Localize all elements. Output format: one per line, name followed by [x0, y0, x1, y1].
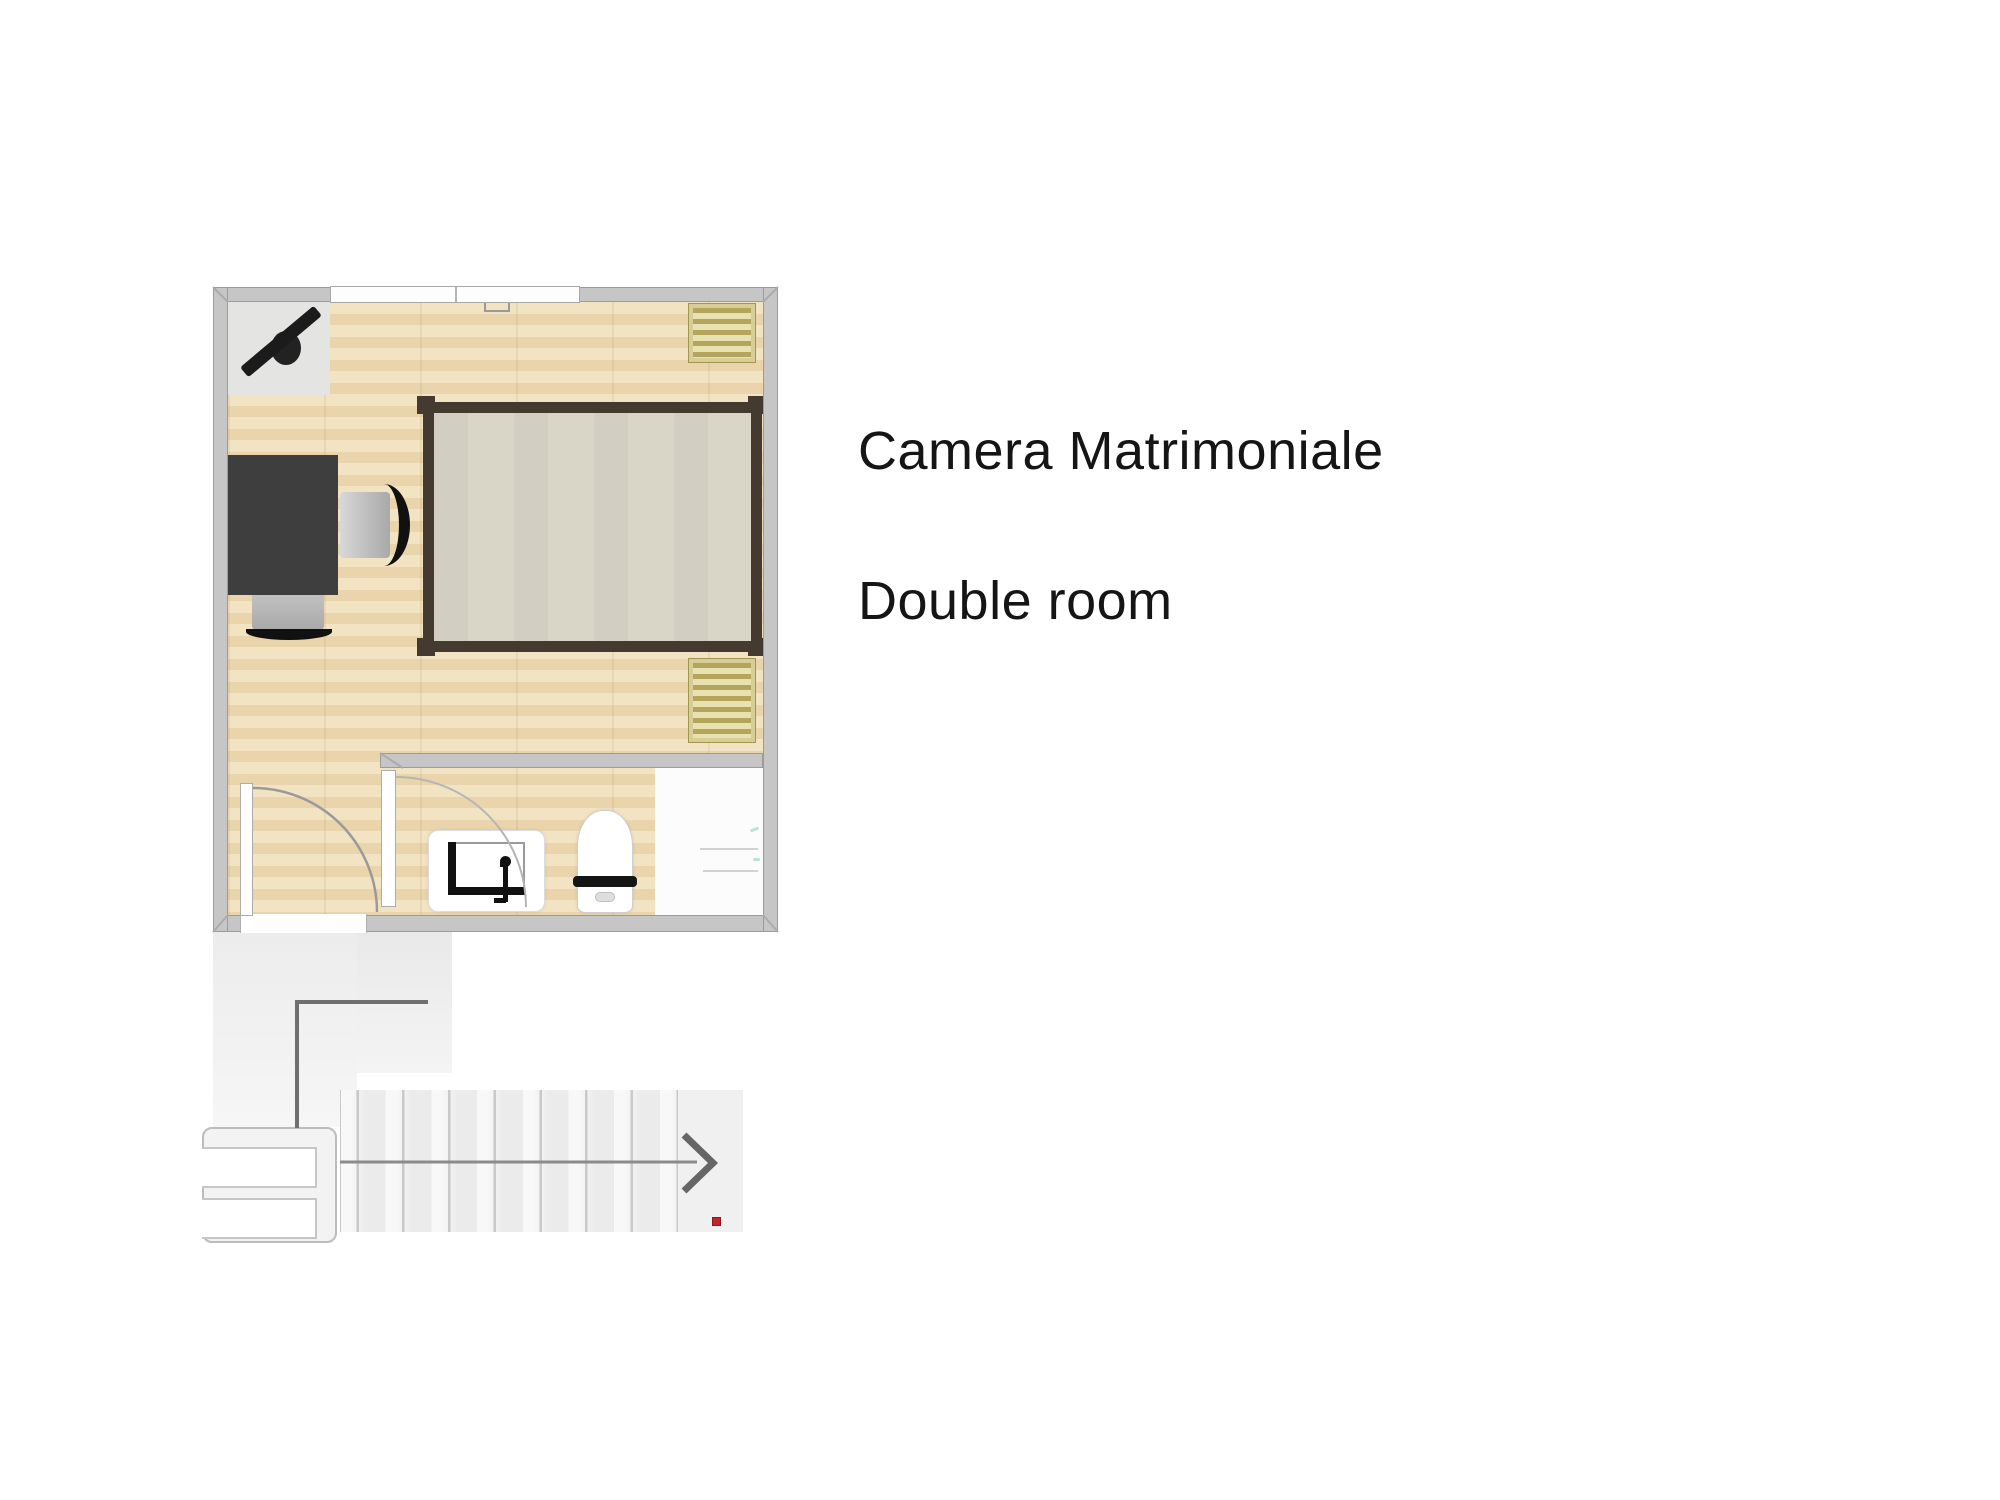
- room-label-italian: Camera Matrimoniale: [858, 420, 1384, 482]
- room-label-english: Double room: [858, 570, 1173, 632]
- floorplan-page: Camera Matrimoniale Double room: [0, 0, 2000, 1500]
- mattress: [434, 413, 751, 641]
- window-mullion: [455, 287, 457, 302]
- toilet-seat-hinge: [573, 876, 637, 887]
- wall-bathroom: [380, 753, 763, 768]
- window-handle-mark: [484, 302, 510, 312]
- wall-right: [763, 287, 778, 932]
- water-mark: [753, 858, 760, 861]
- radiator-fins: [693, 308, 751, 358]
- entry-door-opening: [240, 914, 367, 933]
- radiator-lower: [688, 658, 756, 743]
- desk-chair-right-seat: [340, 492, 390, 558]
- toilet-flush: [595, 892, 615, 902]
- shower-line: [703, 870, 758, 872]
- landing-step: [202, 1198, 317, 1239]
- radiator-upper: [688, 303, 756, 363]
- sink-edge: [448, 887, 525, 895]
- wall-left: [213, 287, 228, 932]
- landing-step: [202, 1147, 317, 1188]
- hallway-band: [213, 932, 357, 1127]
- staircase-bottom-tread: [678, 1090, 743, 1232]
- bathroom-door-leaf: [381, 770, 396, 907]
- staircase-treads: [340, 1090, 678, 1232]
- shower-area: [655, 768, 763, 915]
- faucet-icon: [494, 898, 506, 903]
- sink-basin: [448, 842, 525, 890]
- desk-chair-bottom-backrest: [246, 612, 332, 640]
- hallway-band: [357, 932, 452, 1073]
- faucet-icon: [503, 864, 508, 902]
- radiator-fins: [693, 663, 751, 738]
- shower-line: [700, 848, 758, 850]
- desk: [228, 455, 338, 595]
- red-position-marker: [712, 1217, 721, 1226]
- entry-door-leaf: [240, 783, 253, 916]
